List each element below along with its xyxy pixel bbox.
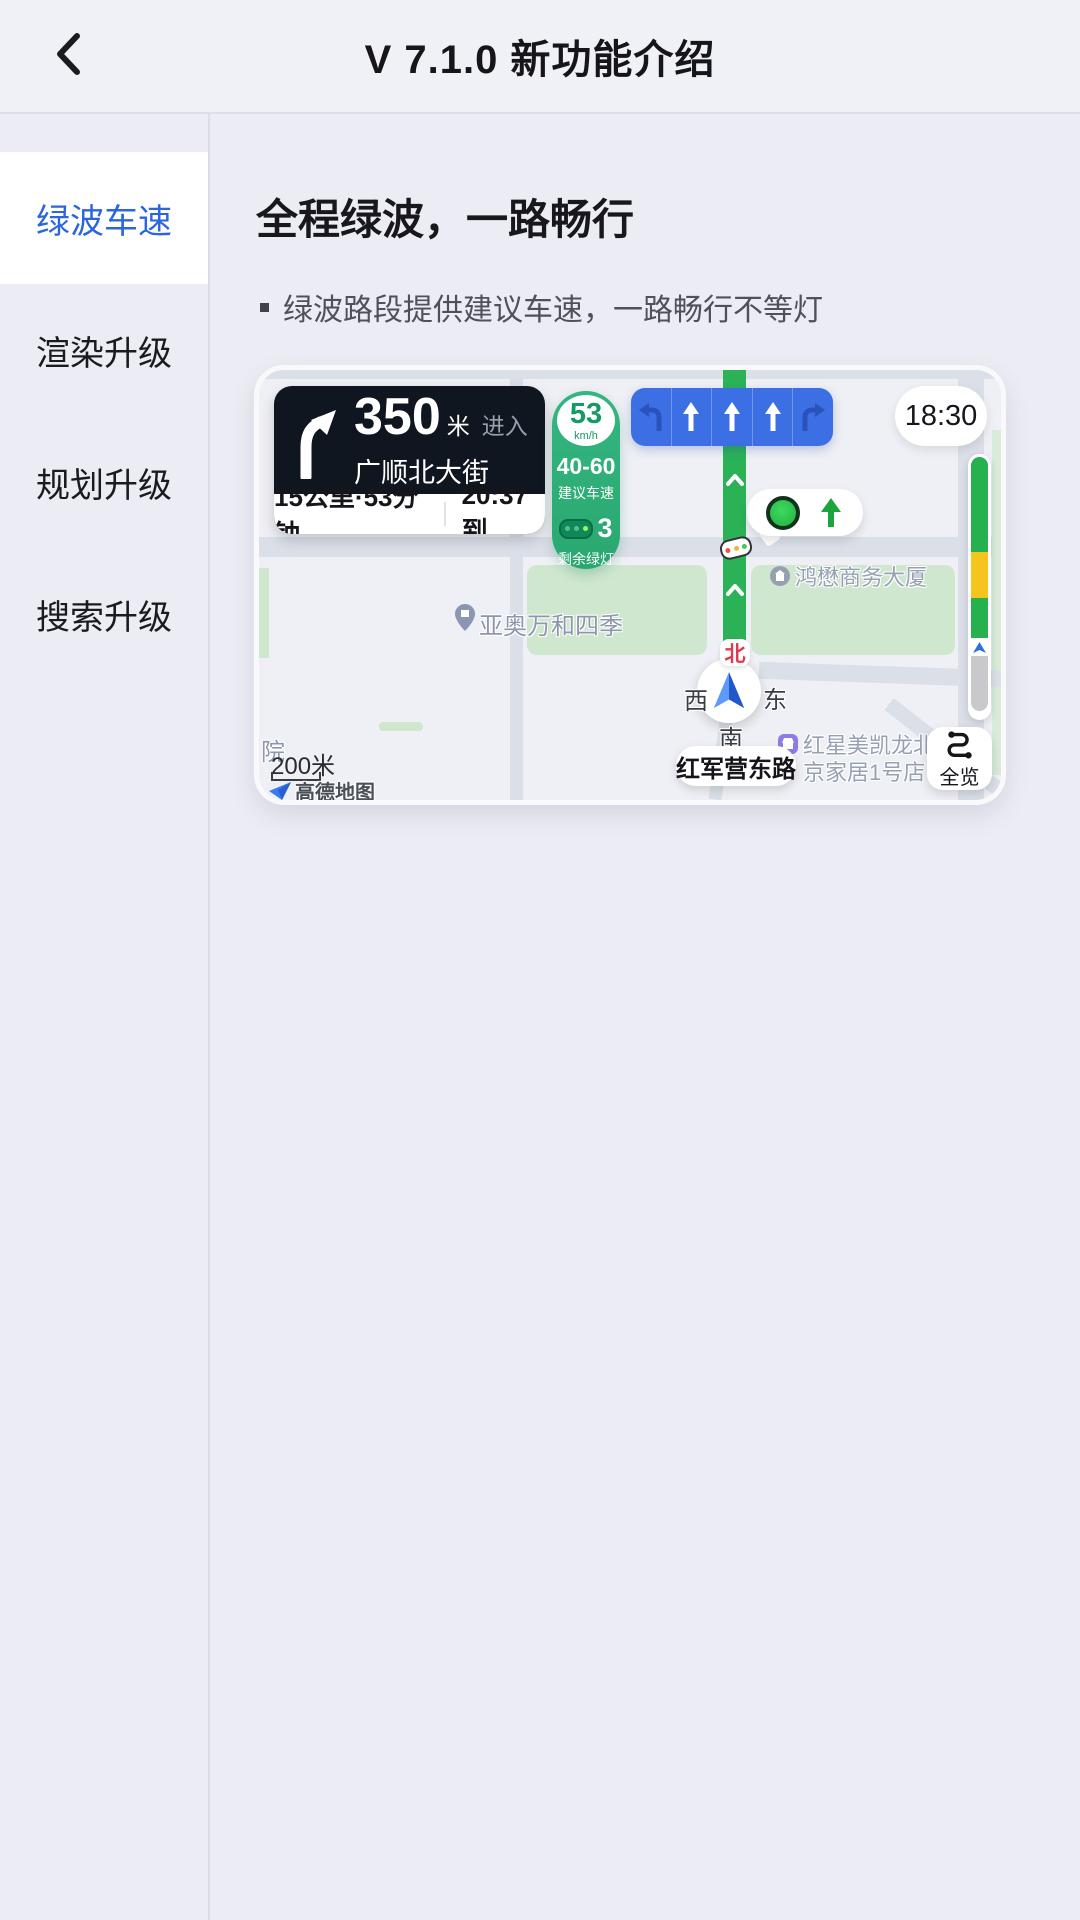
remaining-lights-count: 3 [597,513,612,544]
route-chevron-icon [726,583,744,596]
poi-store: 红星美凯龙北 京家居1号店 [778,732,935,786]
trip-eta: 20:37到 [462,480,545,534]
map-logo: 高德地图 [269,776,375,800]
route-overview-icon [945,728,975,760]
chevron-left-icon [52,31,84,77]
navigation-arrow-icon [710,670,748,712]
route-chevron-icon [726,473,744,486]
sidebar-item-planning-upgrade[interactable]: 规划升级 [0,416,208,548]
traffic-segment-green [971,457,988,552]
poi-complex: 亚奥万和四季 [455,604,623,641]
traffic-segment-gray [971,656,988,711]
summary-divider [444,502,446,526]
trip-distance-time: 15公里·53分钟 [274,477,428,534]
poi-store-label: 红星美凯龙北 京家居1号店 [803,732,935,786]
feature-bullet-text: 绿波路段提供建议车速，一路畅行不等灯 [283,285,823,329]
straight-arrow-icon [818,498,844,528]
sidebar: 绿波车速 渲染升级 规划升级 搜索升级 [0,114,210,1920]
lane-turn-right-icon [793,388,833,446]
turn-action: 进入 [482,407,528,441]
lane-straight-icon [753,388,794,446]
lane-turn-left-icon [631,388,672,446]
header: V 7.1.0 新功能介绍 [0,0,1080,114]
page-header-title: V 7.1.0 新功能介绍 [365,27,716,85]
speed-unit: km/h [574,430,598,442]
poi-building-label: 鸿懋商务大厦 [795,560,927,592]
sidebar-item-render-upgrade[interactable]: 渲染升级 [0,284,208,416]
car-progress-marker [971,638,988,656]
traffic-light-icon [559,519,593,539]
overview-button[interactable]: 全览 [927,727,992,790]
map-park [259,568,269,658]
sidebar-item-search-upgrade[interactable]: 搜索升级 [0,548,208,680]
clock-pill: 18:30 [895,386,987,446]
lane-straight-icon [712,388,753,446]
lane-guidance-panel [631,388,833,446]
main-content: 全程绿波，一路畅行 绿波路段提供建议车速，一路畅行不等灯 [212,114,1080,805]
current-speed-circle: 53 km/h [557,395,615,446]
map-screenshot-card: 鸿懋商务大厦 亚奥万和四季 红星美凯龙北 京家居1号店 [254,365,1006,805]
feature-bullet: 绿波路段提供建议车速，一路畅行不等灯 [260,285,1080,329]
remaining-lights-row: 3 [559,513,612,544]
navigation-map: 鸿懋商务大厦 亚奥万和四季 红星美凯龙北 京家居1号店 [259,370,1001,800]
remaining-lights-label: 剩余绿灯 [558,549,614,569]
compass-north-badge: 北 [720,639,750,666]
current-road-pill: 红军营东路 [676,746,796,786]
amap-logo-icon [269,782,291,800]
back-button[interactable] [44,26,92,82]
compass-east-label: 东 [763,680,787,715]
poi-complex-label: 亚奥万和四季 [479,606,623,641]
green-light-icon [766,496,800,530]
map-pin-icon [455,604,475,631]
map-road [259,537,1001,557]
map-road [259,370,1001,379]
trip-progress-bar [968,454,991,720]
turn-distance: 350 [354,391,441,443]
suggested-speed-range: 40-60 [557,453,616,480]
poi-building: 鸿懋商务大厦 [770,560,927,592]
turn-right-arrow-icon [294,401,338,479]
turn-instruction-card: 350 米 进入 广顺北大街 15公里·53分钟 20:37到 [274,386,545,534]
bullet-square-icon [260,303,269,312]
sidebar-item-green-wave[interactable]: 绿波车速 [0,152,208,284]
map-greenbelt [992,430,1001,775]
compass-west-label: 西 [684,681,708,716]
traffic-segment-green [971,598,988,638]
progress-arrow-icon [973,642,986,653]
traffic-segment-yellow [971,552,988,598]
map-logo-label: 高德地图 [295,776,375,800]
lane-straight-icon [672,388,713,446]
green-light-bubble [747,489,863,536]
green-wave-speed-pill: 53 km/h 40-60 建议车速 3 剩余绿灯 [552,391,620,569]
suggested-speed-label: 建议车速 [558,483,614,503]
feature-title: 全程绿波，一路畅行 [256,186,1080,247]
trip-summary: 15公里·53分钟 20:37到 [274,494,545,534]
overview-button-label: 全览 [940,761,980,790]
current-speed: 53 [570,400,602,429]
building-icon [770,566,790,586]
map-park [379,722,423,731]
turn-distance-unit: 米 [447,407,470,441]
